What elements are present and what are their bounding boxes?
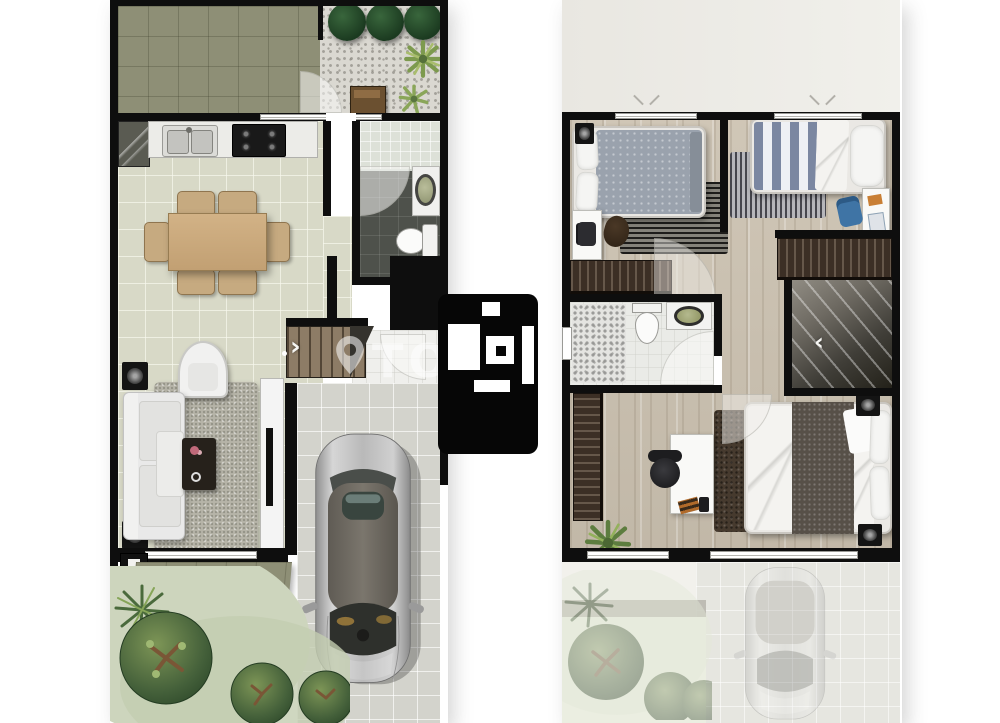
wall: [286, 318, 368, 326]
wall: [714, 294, 722, 356]
faded-car-art: [732, 566, 838, 722]
logo-glyph-hole: [496, 346, 506, 356]
app-logo: [438, 294, 538, 454]
backyard-door-opening: [326, 113, 356, 121]
pillow: [575, 171, 599, 212]
front-garden: [110, 566, 350, 723]
speaker: [575, 123, 594, 144]
window: [774, 113, 862, 119]
washbasin: [674, 306, 704, 326]
wall: [570, 385, 722, 393]
speaker: [858, 524, 882, 546]
logo-glyph-block: [522, 326, 534, 384]
desk-phone: [699, 497, 709, 512]
logo-glyph-block: [448, 324, 480, 370]
flower-decor: [190, 446, 199, 455]
balcony-opening: [587, 551, 669, 559]
wall: [784, 280, 792, 388]
wall: [323, 121, 331, 216]
master-wardrobe: [573, 393, 603, 521]
dining-chair: [263, 222, 290, 262]
bench-top: [354, 90, 380, 98]
armchair: [178, 341, 228, 398]
desk-chair: [578, 222, 596, 246]
desk-book: [678, 497, 701, 515]
round-tree: [366, 3, 404, 41]
kitchen-sink: [162, 125, 218, 157]
stairs-down-arrow: ‹: [814, 330, 824, 354]
bedroom2-foot-band: [690, 132, 702, 212]
pillow: [869, 466, 891, 521]
coffee-table: [182, 438, 216, 490]
stairwell-down: [790, 280, 892, 388]
window: [615, 113, 697, 119]
wall: [720, 120, 728, 232]
washbasin: [415, 174, 436, 206]
faucet: [186, 127, 192, 133]
desk-chair: [650, 458, 680, 488]
palm-plant: [396, 82, 432, 116]
dining-table: [168, 213, 267, 271]
speaker: [122, 362, 148, 390]
faded-garden-art: [562, 570, 712, 720]
sink-basin: [191, 130, 213, 154]
front-window: [145, 551, 257, 559]
wall: [285, 383, 297, 555]
tv: [266, 428, 273, 506]
wall: [440, 0, 448, 485]
wall: [892, 112, 900, 562]
pillow: [850, 125, 884, 187]
armchair-seat: [188, 363, 218, 391]
logo-glyph-block: [474, 380, 510, 392]
backyard-patio: [118, 6, 320, 113]
balcony-door-opening: [562, 327, 572, 360]
floorplan-canvas: ›: [0, 0, 1000, 723]
kitchen-cabinet: [118, 121, 150, 167]
dining-chair: [177, 269, 215, 295]
sofa-chaise: [156, 431, 184, 497]
bathroom-door-opening: [714, 356, 722, 385]
dining-chair: [218, 269, 257, 295]
front-door-opening: [440, 300, 448, 336]
speaker: [856, 394, 880, 416]
palm-plant: [402, 38, 444, 80]
wall: [775, 230, 900, 238]
dining-chair: [144, 222, 170, 262]
round-tree: [328, 3, 366, 41]
faded-car: [732, 566, 838, 722]
wall: [784, 388, 900, 396]
window: [710, 551, 858, 559]
second-floor-plan: ‹: [562, 0, 902, 723]
roof-terrace-faded: [562, 0, 900, 114]
desk-item-orange: [867, 194, 883, 206]
pillow: [869, 410, 891, 465]
dish-decor: [191, 472, 201, 482]
stairs-up-arrow: ›: [290, 334, 301, 360]
shower-area: [360, 121, 440, 169]
wall: [110, 0, 448, 6]
logo-glyph-block: [482, 302, 500, 316]
sofa: [123, 392, 185, 540]
wall: [352, 121, 360, 283]
bedroom3-striped-duvet: [754, 122, 824, 190]
crumpled-sheet: [815, 118, 849, 191]
wall: [327, 256, 337, 326]
wall: [110, 0, 118, 612]
ground-floor-plan: ›: [110, 0, 448, 723]
stair-newel-dot: [282, 351, 287, 356]
wall: [318, 6, 323, 40]
round-tree: [404, 2, 442, 40]
garden-bench: [350, 86, 386, 116]
wall: [570, 294, 722, 302]
bedroom3-wardrobe: [777, 238, 892, 280]
logo-glyph-block: [486, 336, 514, 364]
cooktop: [232, 124, 286, 157]
bedroom2-duvet: [596, 130, 702, 214]
sink-basin: [167, 130, 189, 154]
sofa-back: [124, 393, 138, 539]
faded-garden: [562, 570, 712, 720]
shower-area: [572, 304, 626, 383]
sliding-door-window: [260, 114, 382, 120]
toilet-tank: [422, 224, 438, 258]
